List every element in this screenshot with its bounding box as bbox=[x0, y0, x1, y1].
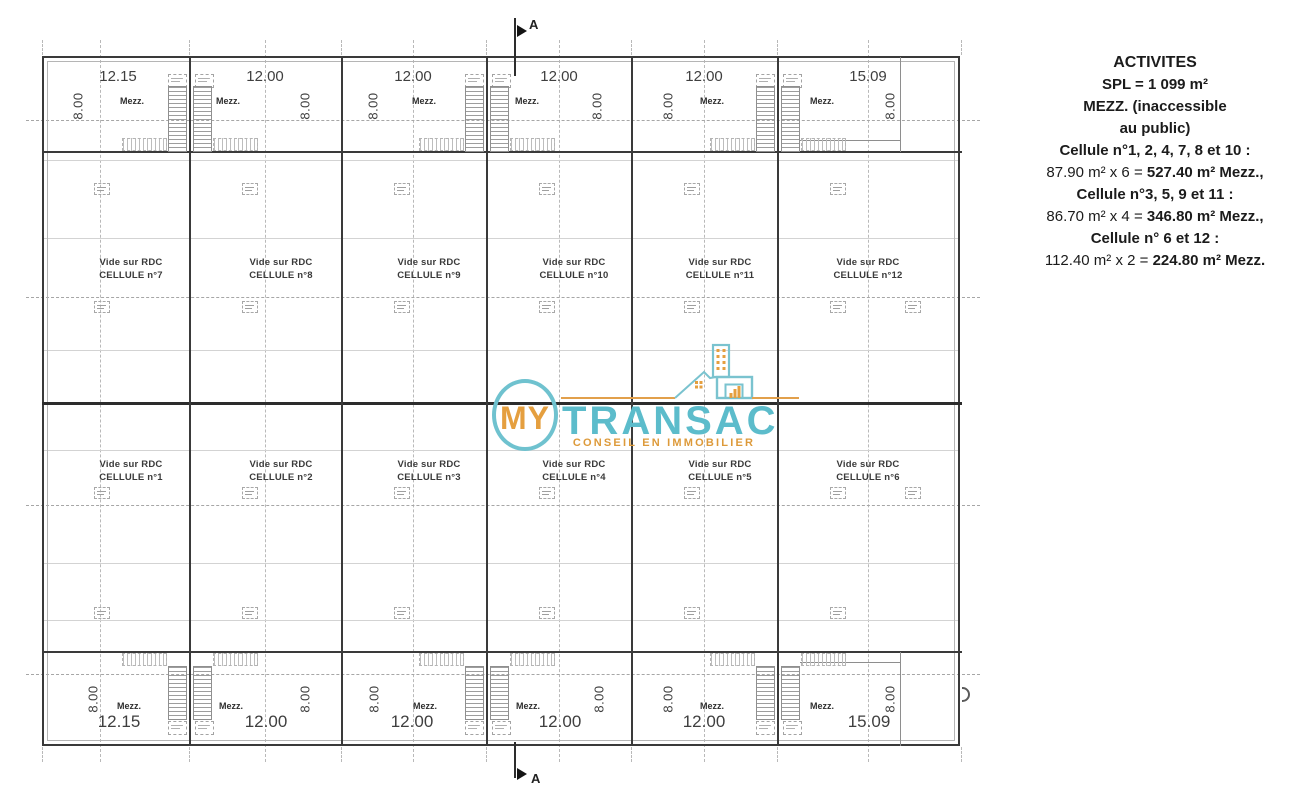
grid-tick bbox=[341, 747, 342, 762]
cell-label: Vide sur RDC CELLULE n°11 bbox=[686, 256, 755, 282]
mezz-hatch bbox=[510, 138, 555, 151]
cell-label: Vide sur RDC CELLULE n°12 bbox=[833, 256, 902, 282]
stair-flight bbox=[490, 666, 509, 720]
floor-plan-page: 12.15 12.00 12.00 12.00 12.00 15.09 12.1… bbox=[0, 0, 1292, 800]
equipment-box bbox=[905, 301, 921, 313]
vide-label: Vide sur RDC bbox=[542, 458, 606, 471]
stair-flight bbox=[465, 666, 484, 720]
mezz-hatch bbox=[510, 653, 555, 666]
calc-expression: 86.70 m² x 4 = bbox=[1046, 208, 1146, 225]
stair-box bbox=[756, 721, 775, 735]
stair-box bbox=[492, 721, 511, 735]
cell-label: Vide sur RDC CELLULE n°9 bbox=[397, 256, 461, 282]
stair-box bbox=[195, 721, 214, 735]
equipment-box bbox=[684, 183, 700, 195]
dimension-label: 15.09 bbox=[848, 712, 891, 732]
equipment-box bbox=[242, 183, 258, 195]
mezz-label: Mezz. bbox=[516, 701, 540, 711]
mezz-label: Mezz. bbox=[412, 96, 436, 106]
equipment-box bbox=[684, 301, 700, 313]
mezz-hatch bbox=[801, 138, 846, 151]
grid-tick bbox=[42, 747, 43, 762]
legend-group-calc: 87.90 m² x 6 = 527.40 m² Mezz., bbox=[1018, 162, 1292, 184]
cell-partition-wall bbox=[486, 56, 488, 746]
mezz-hatch bbox=[122, 653, 167, 666]
section-cut-line bbox=[514, 742, 516, 778]
grid-tick bbox=[777, 40, 778, 55]
mezz-hatch bbox=[419, 138, 464, 151]
dimension-label: 12.00 bbox=[394, 68, 432, 85]
vide-label: Vide sur RDC bbox=[99, 458, 163, 471]
cell-name: CELLULE n°8 bbox=[249, 269, 313, 282]
mezz-label: Mezz. bbox=[117, 701, 141, 711]
mezz-hatch bbox=[419, 653, 464, 666]
equipment-box bbox=[539, 183, 555, 195]
cell-name: CELLULE n°2 bbox=[249, 471, 313, 484]
mezz-label: Mezz. bbox=[810, 701, 834, 711]
legend-group-title: Cellule n° 6 et 12 : bbox=[1018, 228, 1292, 250]
dimension-label: 15.09 bbox=[849, 68, 887, 85]
cell-partition-wall bbox=[189, 56, 191, 746]
dimension-label: 12.00 bbox=[540, 68, 578, 85]
stair-box bbox=[465, 721, 484, 735]
cell-name: CELLULE n°12 bbox=[833, 269, 902, 282]
stair-flight bbox=[193, 666, 212, 720]
mezz-hatch bbox=[122, 138, 167, 151]
calc-result: 346.80 m² Mezz., bbox=[1147, 208, 1264, 225]
stair-flight bbox=[781, 666, 800, 720]
stair-flight bbox=[756, 86, 775, 152]
mezz-hatch bbox=[213, 138, 258, 151]
calc-expression: 112.40 m² x 2 = bbox=[1045, 252, 1153, 269]
dimension-label: 12.00 bbox=[245, 712, 288, 732]
dimension-label: 12.15 bbox=[98, 712, 141, 732]
cell-label: Vide sur RDC CELLULE n°10 bbox=[539, 256, 608, 282]
depth-dimension-label: 8.00 bbox=[71, 92, 86, 119]
grid-tick bbox=[341, 40, 342, 55]
vide-label: Vide sur RDC bbox=[539, 256, 608, 269]
mezz-label: Mezz. bbox=[515, 96, 539, 106]
vide-label: Vide sur RDC bbox=[99, 256, 163, 269]
equipment-box bbox=[830, 607, 846, 619]
calc-result: 527.40 m² Mezz., bbox=[1147, 164, 1264, 181]
depth-dimension-label: 8.00 bbox=[661, 92, 676, 119]
stair-flight bbox=[193, 86, 212, 152]
equipment-box bbox=[94, 487, 110, 499]
cell-label: Vide sur RDC CELLULE n°3 bbox=[397, 458, 461, 484]
vide-label: Vide sur RDC bbox=[249, 256, 313, 269]
depth-dimension-label: 8.00 bbox=[883, 685, 898, 712]
cell-label: Vide sur RDC CELLULE n°5 bbox=[688, 458, 752, 484]
cell-name: CELLULE n°9 bbox=[397, 269, 461, 282]
vide-label: Vide sur RDC bbox=[397, 458, 461, 471]
equipment-box bbox=[94, 301, 110, 313]
equipment-box bbox=[539, 487, 555, 499]
legend-group-calc: 86.70 m² x 4 = 346.80 m² Mezz., bbox=[1018, 206, 1292, 228]
depth-dimension-label: 8.00 bbox=[661, 685, 676, 712]
section-arrow-icon bbox=[517, 768, 527, 780]
mezz-hatch bbox=[710, 138, 755, 151]
grid-tick bbox=[961, 747, 962, 762]
grid-tick bbox=[486, 747, 487, 762]
mezz-edge-line bbox=[900, 57, 901, 152]
dimension-label: 12.00 bbox=[246, 68, 284, 85]
equipment-box bbox=[539, 607, 555, 619]
depth-dimension-label: 8.00 bbox=[883, 92, 898, 119]
equipment-box bbox=[394, 183, 410, 195]
cell-label: Vide sur RDC CELLULE n°4 bbox=[542, 458, 606, 484]
vide-label: Vide sur RDC bbox=[686, 256, 755, 269]
legend-mezz-note: au public) bbox=[1018, 118, 1292, 140]
cell-label: Vide sur RDC CELLULE n°2 bbox=[249, 458, 313, 484]
legend-group-calc: 112.40 m² x 2 = 224.80 m² Mezz. bbox=[1018, 250, 1292, 272]
stair-flight bbox=[168, 666, 187, 720]
section-arrow-icon bbox=[517, 25, 527, 37]
equipment-box bbox=[684, 607, 700, 619]
mezz-label: Mezz. bbox=[120, 96, 144, 106]
grid-tick bbox=[189, 40, 190, 55]
equipment-box bbox=[539, 301, 555, 313]
grid-tick bbox=[631, 40, 632, 55]
equipment-box bbox=[242, 487, 258, 499]
dimension-label: 12.15 bbox=[99, 68, 137, 85]
depth-dimension-label: 8.00 bbox=[298, 685, 313, 712]
vide-label: Vide sur RDC bbox=[397, 256, 461, 269]
cell-name: CELLULE n°4 bbox=[542, 471, 606, 484]
stair-flight bbox=[490, 86, 509, 152]
equipment-box bbox=[830, 183, 846, 195]
calc-result: 224.80 m² Mezz. bbox=[1153, 252, 1266, 269]
grid-tick bbox=[631, 747, 632, 762]
stair-box bbox=[168, 721, 187, 735]
exit-door-swing bbox=[962, 687, 970, 702]
mezz-label: Mezz. bbox=[216, 96, 240, 106]
depth-dimension-label: 8.00 bbox=[298, 92, 313, 119]
mezz-hatch bbox=[710, 653, 755, 666]
equipment-box bbox=[830, 301, 846, 313]
mezz-label: Mezz. bbox=[700, 701, 724, 711]
logo-monogram: MY bbox=[492, 400, 558, 437]
depth-dimension-label: 8.00 bbox=[590, 92, 605, 119]
depth-dimension-label: 8.00 bbox=[367, 685, 382, 712]
cell-name: CELLULE n°11 bbox=[686, 269, 755, 282]
legend: ACTIVITES SPL = 1 099 m² MEZZ. (inaccess… bbox=[1018, 52, 1292, 272]
section-cut-line bbox=[514, 18, 516, 76]
mezz-label: Mezz. bbox=[219, 701, 243, 711]
stair-box bbox=[783, 721, 802, 735]
section-label: A bbox=[529, 17, 538, 32]
dimension-label: 12.00 bbox=[391, 712, 434, 732]
cell-name: CELLULE n°7 bbox=[99, 269, 163, 282]
vide-label: Vide sur RDC bbox=[836, 458, 900, 471]
legend-mezz-note: MEZZ. (inaccessible bbox=[1018, 96, 1292, 118]
dimension-label: 12.00 bbox=[685, 68, 723, 85]
depth-dimension-label: 8.00 bbox=[366, 92, 381, 119]
cell-name: CELLULE n°10 bbox=[539, 269, 608, 282]
cell-name: CELLULE n°3 bbox=[397, 471, 461, 484]
equipment-box bbox=[242, 301, 258, 313]
section-label: A bbox=[531, 771, 540, 786]
grid-tick bbox=[189, 747, 190, 762]
mezz-hatch bbox=[801, 653, 846, 666]
dimension-label: 12.00 bbox=[539, 712, 582, 732]
cell-name: CELLULE n°1 bbox=[99, 471, 163, 484]
logo-building-icon bbox=[553, 341, 803, 405]
grid-tick bbox=[777, 747, 778, 762]
mezz-label: Mezz. bbox=[810, 96, 834, 106]
cell-label: Vide sur RDC CELLULE n°8 bbox=[249, 256, 313, 282]
depth-dimension-label: 8.00 bbox=[592, 685, 607, 712]
grid-tick bbox=[961, 40, 962, 55]
cell-label: Vide sur RDC CELLULE n°1 bbox=[99, 458, 163, 484]
cell-label: Vide sur RDC CELLULE n°7 bbox=[99, 256, 163, 282]
vide-label: Vide sur RDC bbox=[249, 458, 313, 471]
mezz-label: Mezz. bbox=[413, 701, 437, 711]
equipment-box bbox=[94, 607, 110, 619]
equipment-box bbox=[394, 607, 410, 619]
vide-label: Vide sur RDC bbox=[688, 458, 752, 471]
calc-expression: 87.90 m² x 6 = bbox=[1046, 164, 1146, 181]
legend-spl: SPL = 1 099 m² bbox=[1018, 74, 1292, 96]
cell-name: CELLULE n°6 bbox=[836, 471, 900, 484]
grid-tick bbox=[42, 40, 43, 55]
stair-flight bbox=[465, 86, 484, 152]
mezz-hatch bbox=[213, 653, 258, 666]
equipment-box bbox=[242, 607, 258, 619]
stair-flight bbox=[168, 86, 187, 152]
dimension-label: 12.00 bbox=[683, 712, 726, 732]
equipment-box bbox=[905, 487, 921, 499]
cell-name: CELLULE n°5 bbox=[688, 471, 752, 484]
grid-tick bbox=[486, 40, 487, 55]
equipment-box bbox=[684, 487, 700, 499]
legend-title: ACTIVITES bbox=[1018, 52, 1292, 74]
depth-dimension-label: 8.00 bbox=[86, 685, 101, 712]
mezz-label: Mezz. bbox=[700, 96, 724, 106]
mezz-edge-line bbox=[900, 652, 901, 746]
equipment-box bbox=[394, 301, 410, 313]
stair-flight bbox=[781, 86, 800, 152]
cell-label: Vide sur RDC CELLULE n°6 bbox=[836, 458, 900, 484]
cell-partition-wall bbox=[341, 56, 343, 746]
logo-tagline: CONSEIL EN IMMOBILIER bbox=[566, 437, 762, 449]
stair-flight bbox=[756, 666, 775, 720]
legend-group-title: Cellule n°3, 5, 9 et 11 : bbox=[1018, 184, 1292, 206]
legend-group-title: Cellule n°1, 2, 4, 7, 8 et 10 : bbox=[1018, 140, 1292, 162]
equipment-box bbox=[394, 487, 410, 499]
equipment-box bbox=[94, 183, 110, 195]
vide-label: Vide sur RDC bbox=[833, 256, 902, 269]
equipment-box bbox=[830, 487, 846, 499]
